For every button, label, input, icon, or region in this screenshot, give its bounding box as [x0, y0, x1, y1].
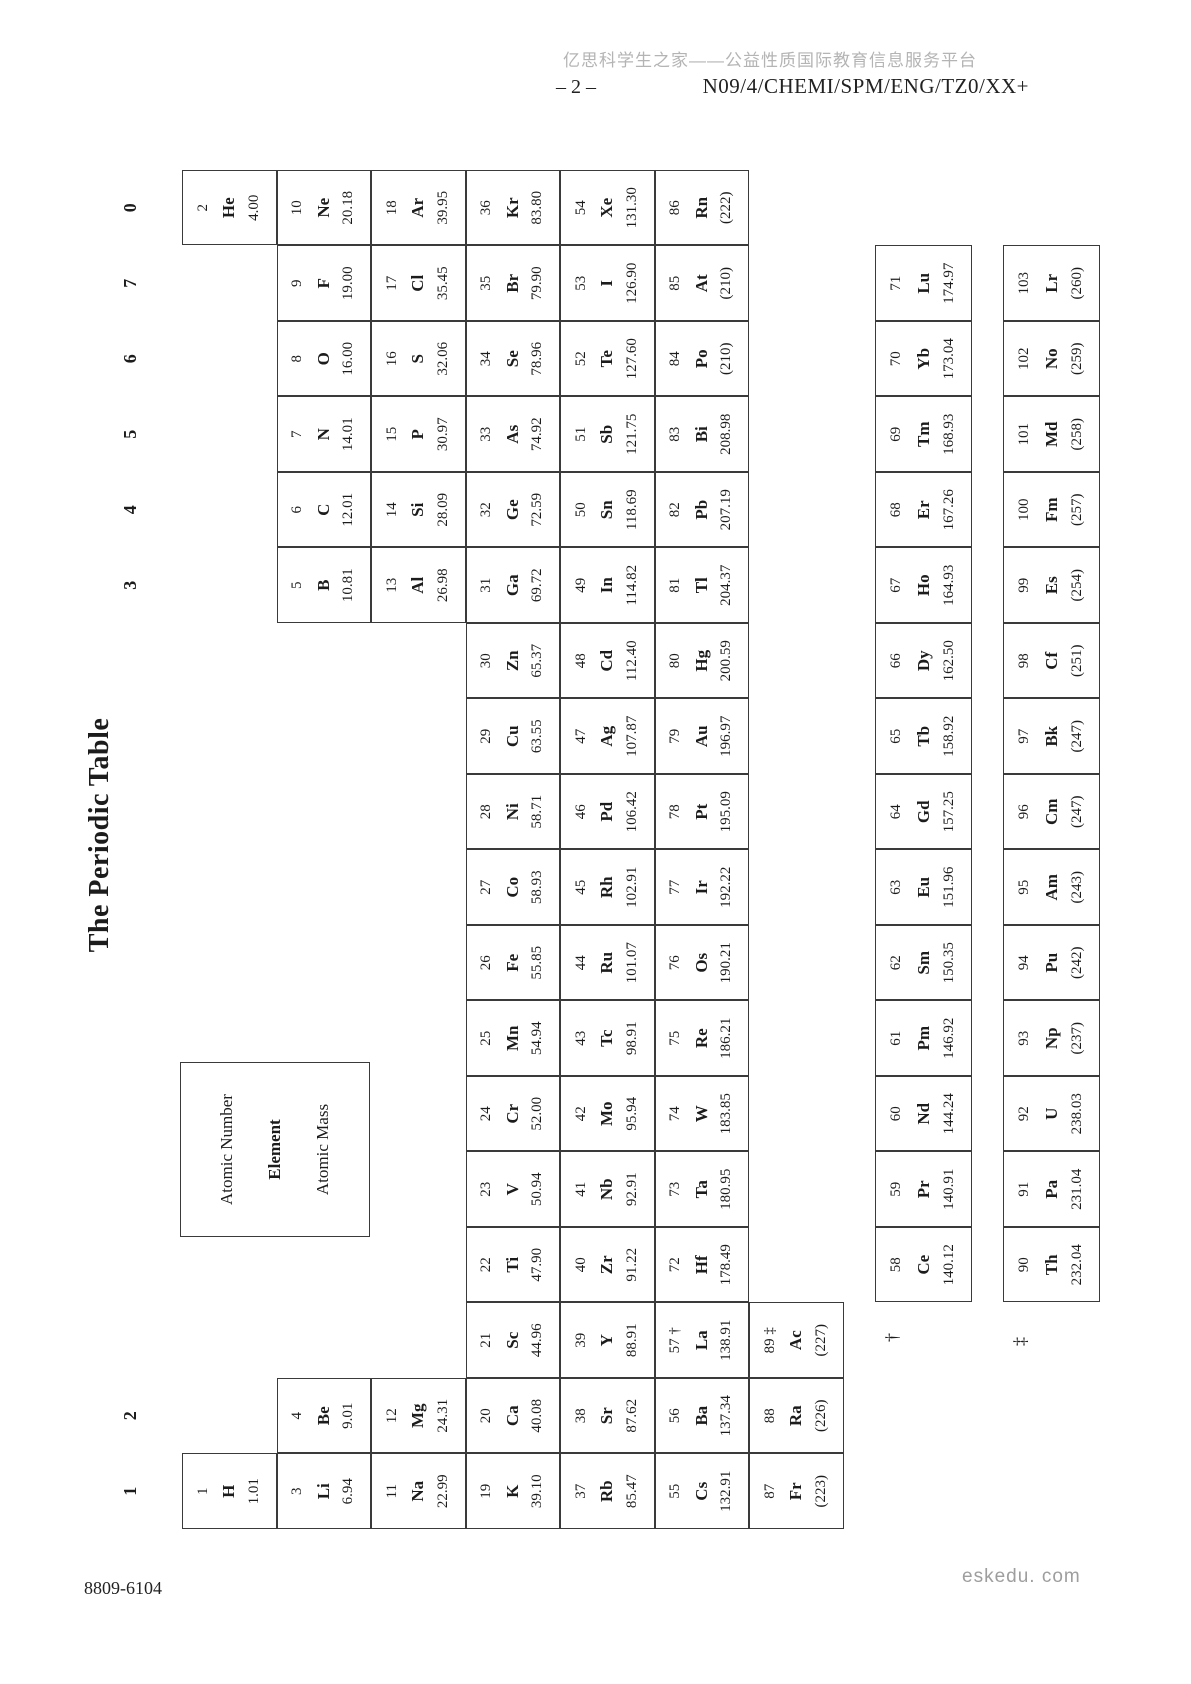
element-symbol: Te	[598, 350, 616, 367]
atomic-mass: 138.91	[719, 1320, 735, 1361]
element-cell-h: 1H1.01	[182, 1454, 277, 1530]
atomic-mass: 164.93	[942, 565, 958, 606]
atomic-number: 11	[385, 1484, 401, 1498]
atomic-mass: 167.26	[942, 489, 958, 530]
atomic-number: 101	[1017, 423, 1033, 446]
atomic-mass: 112.40	[625, 640, 641, 681]
atomic-mass: 207.19	[719, 489, 735, 530]
element-cell-ca: 20Ca40.08	[466, 1378, 561, 1454]
atomic-mass: (247)	[1070, 720, 1086, 753]
element-symbol: Be	[315, 1406, 333, 1425]
element-symbol: Sr	[598, 1407, 616, 1424]
element-cell-sr: 38Sr87.62	[560, 1378, 655, 1454]
group-label-5: 5	[120, 397, 144, 473]
atomic-mass: (242)	[1070, 947, 1086, 980]
group-label-1: 1	[120, 1454, 144, 1530]
atomic-number: 24	[479, 1106, 495, 1121]
element-symbol: Pu	[1043, 953, 1061, 973]
element-symbol: Pa	[1043, 1180, 1061, 1199]
atomic-mass: (258)	[1070, 418, 1086, 451]
group-label-7: 7	[120, 246, 144, 322]
element-symbol: Ho	[915, 574, 933, 596]
element-cell-pr: 59Pr140.91	[875, 1152, 972, 1228]
atomic-mass: 126.90	[625, 263, 641, 304]
element-symbol: Cs	[693, 1482, 711, 1501]
element-cell-ce: 58Ce140.12	[875, 1227, 972, 1303]
atomic-mass: 12.01	[341, 493, 357, 527]
element-symbol: Au	[693, 725, 711, 747]
element-cell-pa: 91Pa231.04	[1003, 1152, 1100, 1228]
element-symbol: In	[598, 577, 616, 593]
atomic-mass: 30.97	[436, 417, 452, 451]
atomic-mass: 10.81	[341, 568, 357, 602]
atomic-mass: 102.91	[625, 867, 641, 908]
element-cell-ni: 28Ni58.71	[466, 774, 561, 850]
atomic-mass: (260)	[1070, 267, 1086, 300]
element-symbol: K	[504, 1485, 522, 1498]
element-cell-pt: 78Pt195.09	[655, 774, 750, 850]
atomic-mass: (251)	[1070, 645, 1086, 678]
element-cell-po: 84Po(210)	[655, 321, 750, 397]
atomic-mass: 180.95	[719, 1169, 735, 1210]
element-cell-am: 95Am(243)	[1003, 850, 1100, 926]
atomic-number: 69	[889, 427, 905, 442]
element-cell-ne: 10Ne20.18	[277, 170, 372, 246]
atomic-mass: 204.37	[719, 565, 735, 606]
atomic-mass: 65.37	[530, 644, 546, 678]
atomic-mass: 144.24	[942, 1093, 958, 1134]
atomic-mass: 26.98	[436, 568, 452, 602]
element-cell-mg: 12Mg24.31	[371, 1378, 466, 1454]
atomic-number: 36	[479, 200, 495, 215]
element-symbol: Ac	[787, 1330, 805, 1350]
atomic-mass: 47.90	[530, 1248, 546, 1282]
element-cell-cf: 98Cf(251)	[1003, 623, 1100, 699]
atomic-number: 67	[889, 578, 905, 593]
atomic-number: 77	[668, 880, 684, 895]
element-symbol: Pb	[693, 500, 711, 520]
atomic-mass: 151.96	[942, 867, 958, 908]
atomic-mass: (257)	[1070, 494, 1086, 527]
element-cell-v: 23V50.94	[466, 1152, 561, 1228]
page-title: The Periodic Table	[84, 130, 116, 1540]
element-cell-f: 9F19.00	[277, 246, 372, 322]
atomic-number: 53	[574, 276, 590, 291]
element-symbol: B	[315, 580, 333, 591]
element-cell-re: 75Re186.21	[655, 1001, 750, 1077]
element-symbol: Pm	[915, 1026, 933, 1051]
element-symbol: Cr	[504, 1104, 522, 1124]
element-cell-hg: 80Hg200.59	[655, 623, 750, 699]
element-symbol: Ta	[693, 1180, 711, 1198]
element-symbol: Pt	[693, 804, 711, 820]
element-cell-fe: 26Fe55.85	[466, 925, 561, 1001]
atomic-number: 41	[574, 1182, 590, 1197]
element-symbol: Fe	[504, 954, 522, 972]
element-symbol: Pd	[598, 802, 616, 822]
atomic-number: 58	[889, 1257, 905, 1272]
element-symbol: Mo	[598, 1101, 616, 1126]
atomic-mass: 127.60	[625, 338, 641, 379]
atomic-number: 94	[1017, 955, 1033, 970]
atomic-mass: 74.92	[530, 417, 546, 451]
element-symbol: Lr	[1043, 274, 1061, 293]
element-symbol: Cd	[598, 650, 616, 672]
atomic-number: 71	[889, 276, 905, 291]
atomic-number: 55	[668, 1484, 684, 1499]
element-cell-yb: 70Yb173.04	[875, 321, 972, 397]
atomic-number: 97	[1017, 729, 1033, 744]
element-symbol: Sm	[915, 951, 933, 975]
atomic-number: 84	[668, 351, 684, 366]
element-cell-rb: 37Rb85.47	[560, 1454, 655, 1530]
element-symbol: Br	[504, 274, 522, 293]
element-cell-dy: 66Dy162.50	[875, 623, 972, 699]
atomic-number: 80	[668, 653, 684, 668]
atomic-number: 29	[479, 729, 495, 744]
atomic-number: 46	[574, 804, 590, 819]
element-symbol: Ga	[504, 574, 522, 596]
atomic-mass: 91.22	[625, 1248, 641, 1282]
atomic-number: 38	[574, 1408, 590, 1423]
atomic-mass: 40.08	[530, 1399, 546, 1433]
element-cell-y: 39Y88.91	[560, 1303, 655, 1379]
element-cell-ag: 47Ag107.87	[560, 699, 655, 775]
element-cell-al: 13Al26.98	[371, 548, 466, 624]
atomic-mass: 69.72	[530, 568, 546, 602]
atomic-mass: (210)	[719, 267, 735, 300]
atomic-number: 72	[668, 1257, 684, 1272]
atomic-number: 3	[290, 1488, 306, 1496]
element-symbol: Tl	[693, 577, 711, 593]
element-cell-ru: 44Ru101.07	[560, 925, 655, 1001]
atomic-number: 31	[479, 578, 495, 593]
atomic-number: 35	[479, 276, 495, 291]
element-symbol: Po	[693, 349, 711, 368]
atomic-mass: 58.93	[530, 870, 546, 904]
element-symbol: Zr	[598, 1255, 616, 1274]
atomic-number: 7	[290, 431, 306, 439]
element-symbol: Kr	[504, 197, 522, 218]
element-cell-tm: 69Tm168.93	[875, 397, 972, 473]
atomic-number: 60	[889, 1106, 905, 1121]
element-cell-er: 68Er167.26	[875, 472, 972, 548]
atomic-mass: 44.96	[530, 1323, 546, 1357]
atomic-mass: 63.55	[530, 719, 546, 753]
element-cell-br: 35Br79.90	[466, 246, 561, 322]
atomic-number: 95	[1017, 880, 1033, 895]
element-symbol: Al	[409, 577, 427, 594]
atomic-number: 32	[479, 502, 495, 517]
element-symbol: Nb	[598, 1178, 616, 1200]
element-cell-at: 85At(210)	[655, 246, 750, 322]
element-cell-he: 2He4.00	[182, 170, 277, 246]
element-symbol: Sb	[598, 425, 616, 444]
element-cell-md: 101Md(258)	[1003, 397, 1100, 473]
atomic-number: 33	[479, 427, 495, 442]
element-symbol: S	[409, 354, 427, 363]
element-symbol: Tb	[915, 726, 933, 747]
page-number: – 2 –	[556, 76, 596, 99]
atomic-number: 23	[479, 1182, 495, 1197]
element-symbol: Hf	[693, 1255, 711, 1274]
element-symbol: Dy	[915, 650, 933, 671]
atomic-mass: 14.01	[341, 417, 357, 451]
atomic-number: 45	[574, 880, 590, 895]
atomic-number: 27	[479, 880, 495, 895]
atomic-mass: 78.96	[530, 342, 546, 376]
element-cell-bk: 97Bk(247)	[1003, 699, 1100, 775]
atomic-mass: 72.59	[530, 493, 546, 527]
element-cell-cu: 29Cu63.55	[466, 699, 561, 775]
atomic-mass: 208.98	[719, 414, 735, 455]
atomic-mass: 132.91	[719, 1471, 735, 1512]
atomic-number: 62	[889, 955, 905, 970]
atomic-mass: 114.82	[625, 565, 641, 606]
atomic-number: 74	[668, 1106, 684, 1121]
atomic-mass: 106.42	[625, 791, 641, 832]
atomic-mass: 4.00	[247, 195, 263, 221]
legend-atomic-number: Atomic Number	[217, 1094, 237, 1205]
atomic-mass: 28.09	[436, 493, 452, 527]
element-cell-bi: 83Bi208.98	[655, 397, 750, 473]
element-symbol: Bi	[693, 426, 711, 442]
atomic-number: 90	[1017, 1257, 1033, 1272]
atomic-number: 66	[889, 653, 905, 668]
atomic-number: 86	[668, 200, 684, 215]
element-cell-ir: 77Ir192.22	[655, 850, 750, 926]
atomic-mass: 232.04	[1070, 1244, 1086, 1285]
element-symbol: Mg	[409, 1403, 427, 1428]
atomic-number: 26	[479, 955, 495, 970]
actinide-double-dagger-marker: ‡	[1010, 1339, 1031, 1346]
atomic-number: 9	[290, 280, 306, 288]
element-cell-s: 16S32.06	[371, 321, 466, 397]
atomic-mass: 178.49	[719, 1244, 735, 1285]
element-cell-p: 15P30.97	[371, 397, 466, 473]
element-cell-ba: 56Ba137.34	[655, 1378, 750, 1454]
element-symbol: U	[1043, 1108, 1061, 1120]
atomic-number: 1	[196, 1488, 212, 1496]
atomic-mass: (254)	[1070, 569, 1086, 602]
atomic-mass: 186.21	[719, 1018, 735, 1059]
atomic-number: 28	[479, 804, 495, 819]
element-cell-zn: 30Zn65.37	[466, 623, 561, 699]
element-cell-xe: 54Xe131.30	[560, 170, 655, 246]
element-cell-ac: 89 ‡Ac(227)	[749, 1303, 844, 1379]
atomic-number: 64	[889, 804, 905, 819]
element-cell-tl: 81Tl204.37	[655, 548, 750, 624]
atomic-number: 70	[889, 351, 905, 366]
element-symbol: Zn	[504, 650, 522, 671]
atomic-number: 75	[668, 1031, 684, 1046]
element-symbol: Gd	[915, 800, 933, 823]
element-symbol: Am	[1043, 874, 1061, 900]
element-symbol: Se	[504, 350, 522, 367]
atomic-mass: 121.75	[625, 414, 641, 455]
element-cell-cl: 17Cl35.45	[371, 246, 466, 322]
atomic-mass: 54.94	[530, 1021, 546, 1055]
atomic-number: 20	[479, 1408, 495, 1423]
atomic-number: 50	[574, 502, 590, 517]
element-symbol: Cl	[409, 275, 427, 292]
atomic-number: 54	[574, 200, 590, 215]
atomic-number: 43	[574, 1031, 590, 1046]
atomic-number: 88	[763, 1408, 779, 1423]
element-symbol: Fm	[1043, 497, 1061, 522]
atomic-mass: (222)	[719, 192, 735, 225]
atomic-number: 61	[889, 1031, 905, 1046]
atomic-mass: 95.94	[625, 1097, 641, 1131]
element-cell-zr: 40Zr91.22	[560, 1227, 655, 1303]
footer-doc-code: 8809-6104	[84, 1578, 162, 1599]
element-cell-sn: 50Sn118.69	[560, 472, 655, 548]
atomic-mass: 200.59	[719, 640, 735, 681]
atomic-mass: 150.35	[942, 942, 958, 983]
element-symbol: Re	[693, 1028, 711, 1048]
atomic-mass: 107.87	[625, 716, 641, 757]
element-cell-i: 53I126.90	[560, 246, 655, 322]
element-cell-pu: 94Pu(242)	[1003, 925, 1100, 1001]
atomic-number: 34	[479, 351, 495, 366]
element-symbol: Nd	[915, 1103, 933, 1125]
element-cell-pb: 82Pb207.19	[655, 472, 750, 548]
element-cell-ge: 32Ge72.59	[466, 472, 561, 548]
atomic-number: 13	[385, 578, 401, 593]
atomic-number: 48	[574, 653, 590, 668]
element-symbol: H	[220, 1485, 238, 1498]
element-symbol: Ni	[504, 803, 522, 820]
element-cell-fm: 100Fm(257)	[1003, 472, 1100, 548]
element-symbol: Rh	[598, 876, 616, 898]
element-symbol: Ne	[315, 198, 333, 218]
element-cell-tb: 65Tb158.92	[875, 699, 972, 775]
atomic-mass: (237)	[1070, 1022, 1086, 1055]
element-symbol: Xe	[598, 198, 616, 218]
atomic-mass: 35.45	[436, 266, 452, 300]
atomic-mass: (223)	[814, 1475, 830, 1508]
atomic-mass: 157.25	[942, 791, 958, 832]
atomic-number: 10	[290, 200, 306, 215]
element-symbol: Na	[409, 1481, 427, 1502]
atomic-number: 22	[479, 1257, 495, 1272]
atomic-number: 81	[668, 578, 684, 593]
element-symbol: Pr	[915, 1180, 933, 1198]
element-symbol: Li	[315, 1483, 333, 1499]
atomic-number: 39	[574, 1333, 590, 1348]
element-symbol: Ge	[504, 499, 522, 520]
atomic-mass: 238.03	[1070, 1093, 1086, 1134]
element-cell-sc: 21Sc44.96	[466, 1303, 561, 1379]
atomic-mass: 158.92	[942, 716, 958, 757]
element-symbol: P	[409, 429, 427, 439]
atomic-mass: 231.04	[1070, 1169, 1086, 1210]
element-cell-o: 8O16.00	[277, 321, 372, 397]
atomic-number: 15	[385, 427, 401, 442]
atomic-mass: 195.09	[719, 791, 735, 832]
atomic-mass: 39.95	[436, 191, 452, 225]
atomic-number: 5	[290, 582, 306, 590]
atomic-number: 8	[290, 355, 306, 363]
element-symbol: Os	[693, 953, 711, 973]
element-cell-kr: 36Kr83.80	[466, 170, 561, 246]
element-symbol: Ba	[693, 1406, 711, 1426]
atomic-mass: (227)	[814, 1324, 830, 1357]
element-symbol: Ca	[504, 1405, 522, 1426]
element-cell-co: 27Co58.93	[466, 850, 561, 926]
element-symbol: Sc	[504, 1332, 522, 1349]
atomic-mass: 16.00	[341, 342, 357, 376]
element-cell-lu: 71Lu174.97	[875, 246, 972, 322]
atomic-number: 17	[385, 276, 401, 291]
element-symbol: Sn	[598, 500, 616, 519]
element-cell-ra: 88Ra(226)	[749, 1378, 844, 1454]
atomic-mass: 140.91	[942, 1169, 958, 1210]
group-label-6: 6	[120, 321, 144, 397]
atomic-number: 93	[1017, 1031, 1033, 1046]
element-cell-pm: 61Pm146.92	[875, 1001, 972, 1077]
element-cell-te: 52Te127.60	[560, 321, 655, 397]
atomic-mass: (210)	[719, 343, 735, 376]
element-cell-ar: 18Ar39.95	[371, 170, 466, 246]
legend-box: Atomic Number Element Atomic Mass	[180, 1062, 370, 1237]
atomic-number: 103	[1017, 272, 1033, 295]
atomic-mass: 173.04	[942, 338, 958, 379]
element-symbol: Yb	[915, 348, 933, 370]
atomic-mass: 98.91	[625, 1021, 641, 1055]
atomic-number: 100	[1017, 499, 1033, 522]
element-cell-n: 7N14.01	[277, 397, 372, 473]
legend-atomic-mass: Atomic Mass	[313, 1104, 333, 1195]
atomic-mass: 85.47	[625, 1474, 641, 1508]
atomic-mass: (259)	[1070, 343, 1086, 376]
element-cell-no: 102No(259)	[1003, 321, 1100, 397]
atomic-number: 19	[479, 1484, 495, 1499]
atomic-mass: 190.21	[719, 942, 735, 983]
atomic-mass: 83.80	[530, 191, 546, 225]
element-cell-au: 79Au196.97	[655, 699, 750, 775]
atomic-mass: 168.93	[942, 414, 958, 455]
atomic-mass: (243)	[1070, 871, 1086, 904]
element-cell-ho: 67Ho164.93	[875, 548, 972, 624]
atomic-mass: 118.69	[625, 489, 641, 530]
element-cell-nd: 60Nd144.24	[875, 1076, 972, 1152]
atomic-number: 87	[763, 1484, 779, 1499]
element-symbol: Rb	[598, 1480, 616, 1502]
element-cell-si: 14Si28.09	[371, 472, 466, 548]
atomic-number: 21	[479, 1333, 495, 1348]
legend-element: Element	[265, 1119, 285, 1179]
element-symbol: W	[693, 1105, 711, 1122]
atomic-mass: 1.01	[247, 1478, 263, 1504]
atomic-mass: 162.50	[942, 640, 958, 681]
element-cell-c: 6C12.01	[277, 472, 372, 548]
atomic-number: 37	[574, 1484, 590, 1499]
element-cell-in: 49In114.82	[560, 548, 655, 624]
element-symbol: Mn	[504, 1026, 522, 1052]
element-symbol: Cm	[1043, 799, 1061, 825]
atomic-mass: 79.90	[530, 266, 546, 300]
element-cell-ga: 31Ga69.72	[466, 548, 561, 624]
atomic-number: 12	[385, 1408, 401, 1423]
atomic-mass: 55.85	[530, 946, 546, 980]
atomic-mass: 146.92	[942, 1018, 958, 1059]
atomic-mass: 20.18	[341, 191, 357, 225]
element-symbol: I	[598, 280, 616, 287]
element-symbol: Co	[504, 877, 522, 898]
element-cell-k: 19K39.10	[466, 1454, 561, 1530]
atomic-number: 82	[668, 502, 684, 517]
